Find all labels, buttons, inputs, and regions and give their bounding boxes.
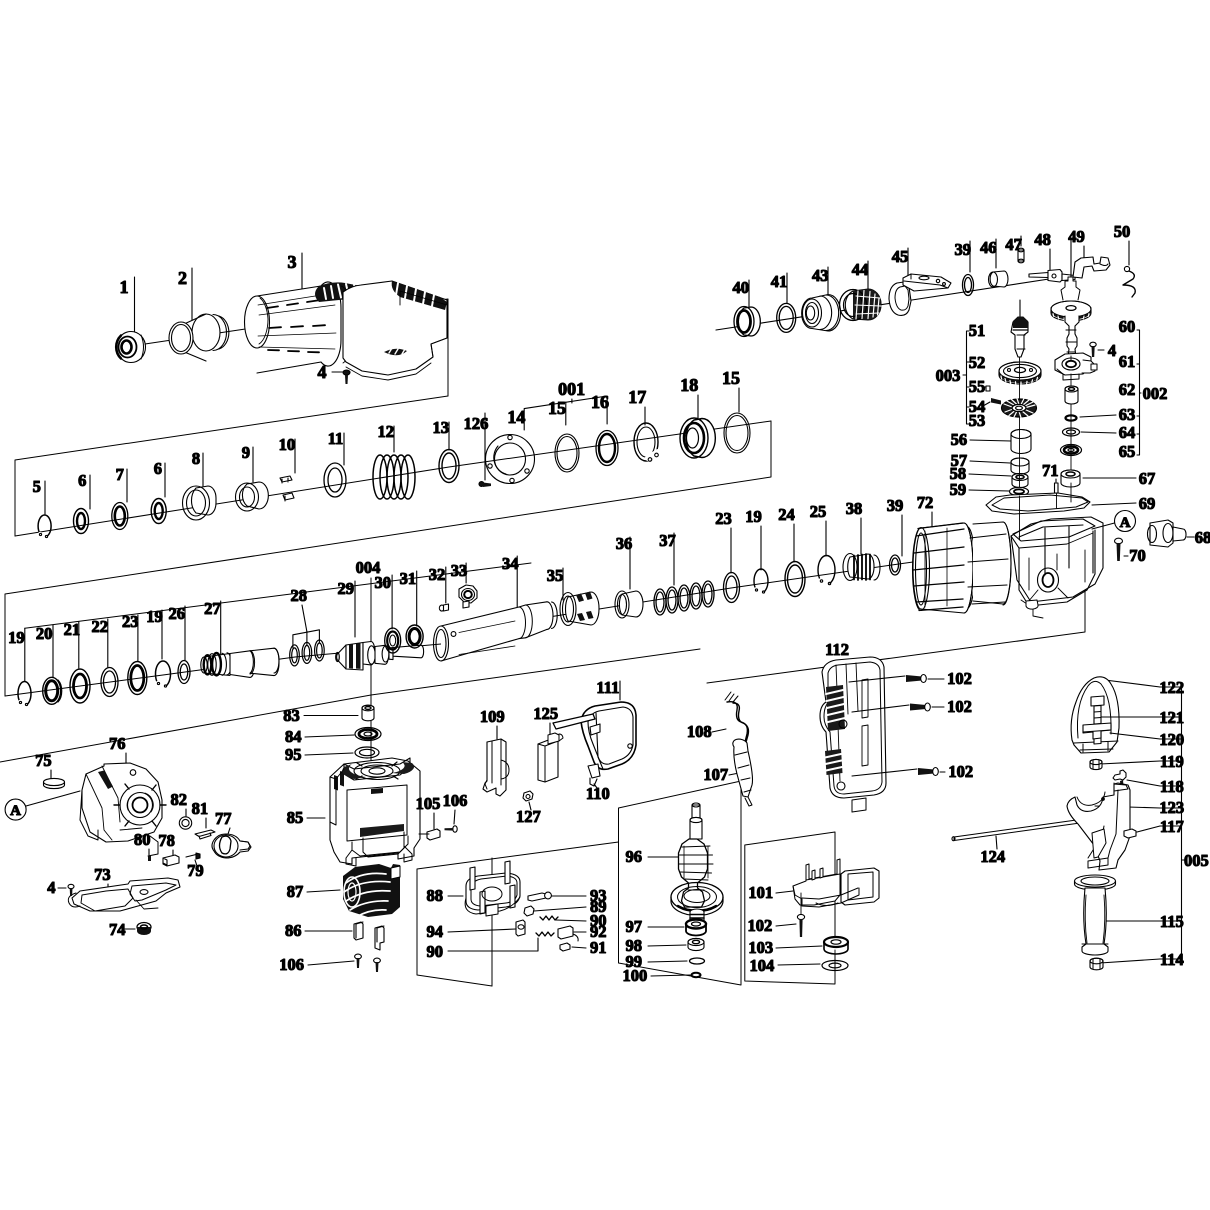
svg-text:114: 114 <box>1160 950 1184 969</box>
svg-text:63: 63 <box>1119 405 1136 424</box>
svg-text:002: 002 <box>1143 384 1168 403</box>
svg-text:124: 124 <box>980 847 1005 866</box>
svg-text:123: 123 <box>1159 798 1184 817</box>
svg-text:22: 22 <box>91 617 108 636</box>
svg-text:105: 105 <box>416 794 441 813</box>
svg-text:24: 24 <box>778 505 795 524</box>
svg-text:48: 48 <box>1034 230 1051 249</box>
svg-text:14: 14 <box>507 407 525 427</box>
svg-text:96: 96 <box>625 847 642 866</box>
svg-text:A: A <box>1120 515 1131 531</box>
svg-text:79: 79 <box>187 861 204 880</box>
svg-text:005: 005 <box>1184 851 1209 870</box>
svg-text:5: 5 <box>33 477 41 496</box>
svg-text:9: 9 <box>242 443 250 462</box>
svg-text:12: 12 <box>378 422 395 441</box>
svg-text:16: 16 <box>591 392 609 412</box>
svg-text:77: 77 <box>215 809 232 828</box>
svg-text:41: 41 <box>771 272 788 291</box>
svg-text:80: 80 <box>134 830 151 849</box>
svg-text:91: 91 <box>590 938 607 957</box>
svg-text:29: 29 <box>338 579 355 598</box>
svg-text:15: 15 <box>548 398 566 418</box>
svg-text:108: 108 <box>687 722 712 741</box>
svg-text:100: 100 <box>623 966 648 985</box>
svg-text:56: 56 <box>951 430 968 449</box>
svg-text:69: 69 <box>1139 494 1156 513</box>
svg-text:39: 39 <box>887 496 904 515</box>
svg-text:37: 37 <box>659 531 676 550</box>
svg-text:61: 61 <box>1119 352 1136 371</box>
svg-text:64: 64 <box>1119 423 1136 442</box>
svg-text:81: 81 <box>192 799 209 818</box>
svg-text:23: 23 <box>122 612 139 631</box>
svg-text:88: 88 <box>426 886 443 905</box>
svg-text:11: 11 <box>328 429 344 448</box>
svg-text:73: 73 <box>94 865 111 884</box>
svg-text:107: 107 <box>703 765 728 784</box>
svg-text:8: 8 <box>192 449 200 468</box>
svg-text:59: 59 <box>950 480 967 499</box>
svg-text:6: 6 <box>154 459 162 478</box>
svg-text:83: 83 <box>283 706 300 725</box>
svg-text:103: 103 <box>748 938 773 957</box>
svg-text:109: 109 <box>480 707 505 726</box>
svg-text:110: 110 <box>586 784 610 803</box>
svg-text:127: 127 <box>516 807 541 826</box>
svg-text:26: 26 <box>168 604 185 623</box>
svg-text:65: 65 <box>1119 442 1136 461</box>
svg-text:115: 115 <box>1160 912 1184 931</box>
svg-text:2: 2 <box>178 268 187 288</box>
svg-text:122: 122 <box>1159 678 1184 697</box>
svg-text:104: 104 <box>750 956 775 975</box>
svg-text:67: 67 <box>1139 469 1156 488</box>
svg-text:78: 78 <box>158 831 175 850</box>
svg-text:44: 44 <box>852 260 869 279</box>
svg-text:84: 84 <box>285 727 302 746</box>
svg-text:71: 71 <box>1042 461 1059 480</box>
svg-text:33: 33 <box>451 561 468 580</box>
svg-text:28: 28 <box>290 586 307 605</box>
svg-text:85: 85 <box>287 808 304 827</box>
svg-text:40: 40 <box>732 278 749 297</box>
svg-text:30: 30 <box>375 573 392 592</box>
svg-text:19: 19 <box>146 607 163 626</box>
svg-text:121: 121 <box>1159 708 1184 727</box>
svg-text:86: 86 <box>285 921 302 940</box>
svg-text:21: 21 <box>64 620 81 639</box>
svg-text:25: 25 <box>810 502 827 521</box>
svg-text:102: 102 <box>748 916 773 935</box>
svg-text:72: 72 <box>917 493 934 512</box>
svg-text:120: 120 <box>1159 730 1184 749</box>
svg-text:32: 32 <box>429 565 446 584</box>
svg-text:7: 7 <box>116 465 124 484</box>
svg-text:95: 95 <box>285 745 302 764</box>
svg-text:52: 52 <box>969 353 986 372</box>
svg-text:94: 94 <box>426 922 443 941</box>
svg-text:46: 46 <box>980 238 997 257</box>
svg-text:18: 18 <box>680 375 698 395</box>
svg-text:6: 6 <box>78 471 86 490</box>
svg-text:A: A <box>10 803 21 819</box>
svg-text:38: 38 <box>846 499 863 518</box>
svg-text:15: 15 <box>722 368 740 388</box>
svg-text:53: 53 <box>969 411 986 430</box>
svg-text:125: 125 <box>533 704 558 723</box>
svg-text:106: 106 <box>443 791 468 810</box>
svg-text:101: 101 <box>748 883 773 902</box>
svg-text:19: 19 <box>745 507 762 526</box>
svg-text:4: 4 <box>318 362 327 382</box>
svg-text:17: 17 <box>628 387 646 407</box>
svg-text:118: 118 <box>1160 777 1184 796</box>
svg-text:001: 001 <box>558 379 585 399</box>
svg-text:70: 70 <box>1129 546 1146 565</box>
svg-text:45: 45 <box>892 247 909 266</box>
svg-text:4: 4 <box>47 878 55 897</box>
svg-text:35: 35 <box>547 566 564 585</box>
svg-text:1: 1 <box>120 277 129 297</box>
svg-text:76: 76 <box>109 734 126 753</box>
svg-text:117: 117 <box>1160 817 1184 836</box>
svg-text:75: 75 <box>35 751 52 770</box>
svg-text:19: 19 <box>8 628 25 647</box>
svg-text:43: 43 <box>812 266 829 285</box>
svg-text:39: 39 <box>954 240 971 259</box>
svg-text:34: 34 <box>502 554 519 573</box>
svg-text:82: 82 <box>171 790 188 809</box>
svg-text:10: 10 <box>279 435 296 454</box>
svg-text:20: 20 <box>36 624 53 643</box>
svg-text:74: 74 <box>109 920 126 939</box>
svg-text:102: 102 <box>947 697 972 716</box>
svg-text:27: 27 <box>204 599 221 618</box>
svg-text:60: 60 <box>1119 317 1136 336</box>
svg-text:4: 4 <box>1108 341 1116 360</box>
svg-text:111: 111 <box>596 678 619 697</box>
svg-text:13: 13 <box>432 418 449 437</box>
svg-text:106: 106 <box>279 955 304 974</box>
svg-text:112: 112 <box>825 640 849 659</box>
svg-text:97: 97 <box>625 917 642 936</box>
svg-text:3: 3 <box>288 252 297 272</box>
svg-text:31: 31 <box>400 569 417 588</box>
svg-text:50: 50 <box>1114 222 1131 241</box>
svg-text:003: 003 <box>936 366 961 385</box>
svg-text:51: 51 <box>969 321 986 340</box>
svg-text:102: 102 <box>948 762 973 781</box>
svg-text:68: 68 <box>1195 528 1210 547</box>
svg-text:87: 87 <box>287 882 304 901</box>
svg-text:119: 119 <box>1160 752 1184 771</box>
svg-text:102: 102 <box>947 669 972 688</box>
svg-text:90: 90 <box>426 942 443 961</box>
svg-text:23: 23 <box>715 509 732 528</box>
svg-text:62: 62 <box>1119 380 1136 399</box>
